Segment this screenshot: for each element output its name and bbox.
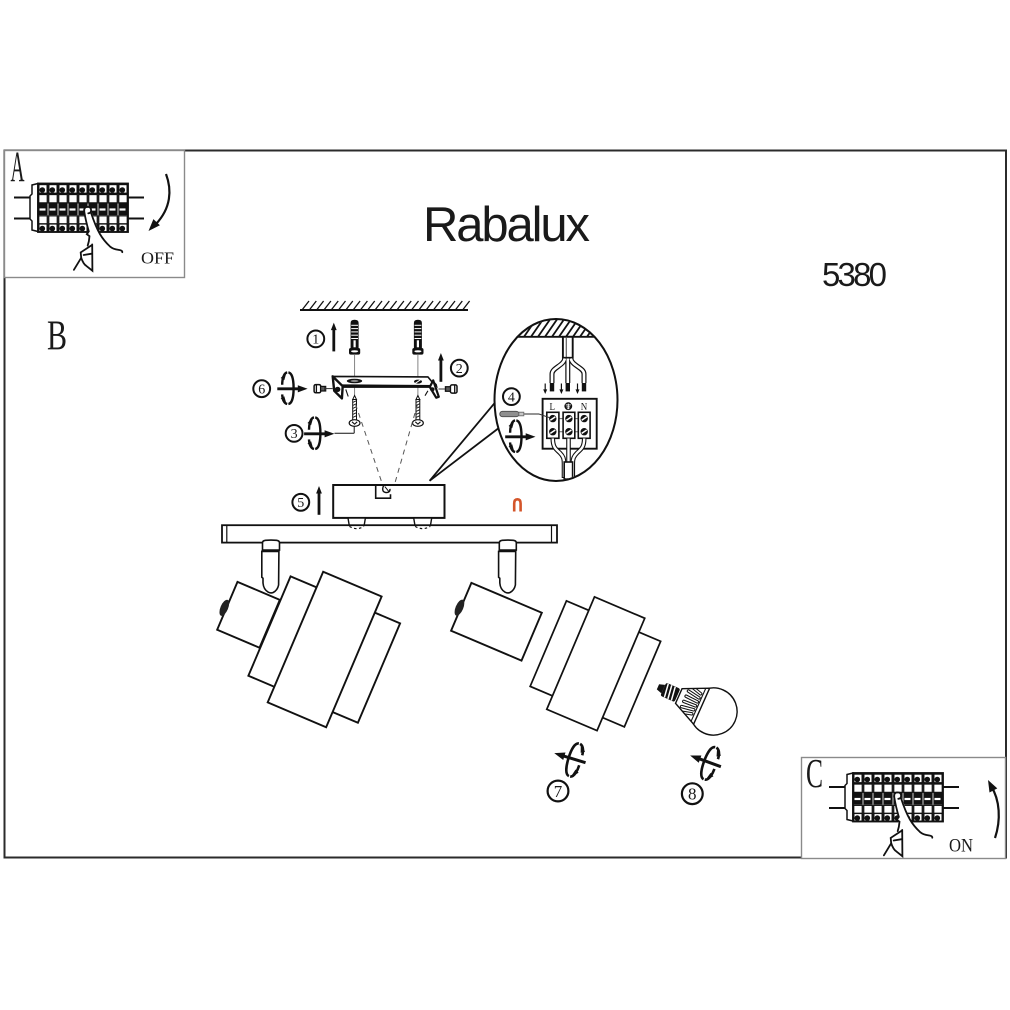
svg-text:N: N [581,401,588,413]
svg-text:6: 6 [258,383,265,398]
svg-text:5: 5 [297,496,304,511]
svg-text:C: C [806,750,823,796]
svg-text:OFF: OFF [141,249,174,268]
svg-text:2: 2 [456,362,463,377]
svg-text:8: 8 [688,785,697,804]
svg-text:B: B [47,314,67,360]
svg-text:5380: 5380 [822,256,887,293]
svg-text:3: 3 [291,427,298,442]
svg-text:Rabalux: Rabalux [423,198,590,252]
svg-text:ON: ON [949,836,973,857]
svg-text:L: L [550,401,556,413]
svg-text:A: A [11,144,25,191]
svg-text:7: 7 [554,782,563,801]
svg-text:4: 4 [508,390,515,405]
svg-text:1: 1 [312,333,319,348]
